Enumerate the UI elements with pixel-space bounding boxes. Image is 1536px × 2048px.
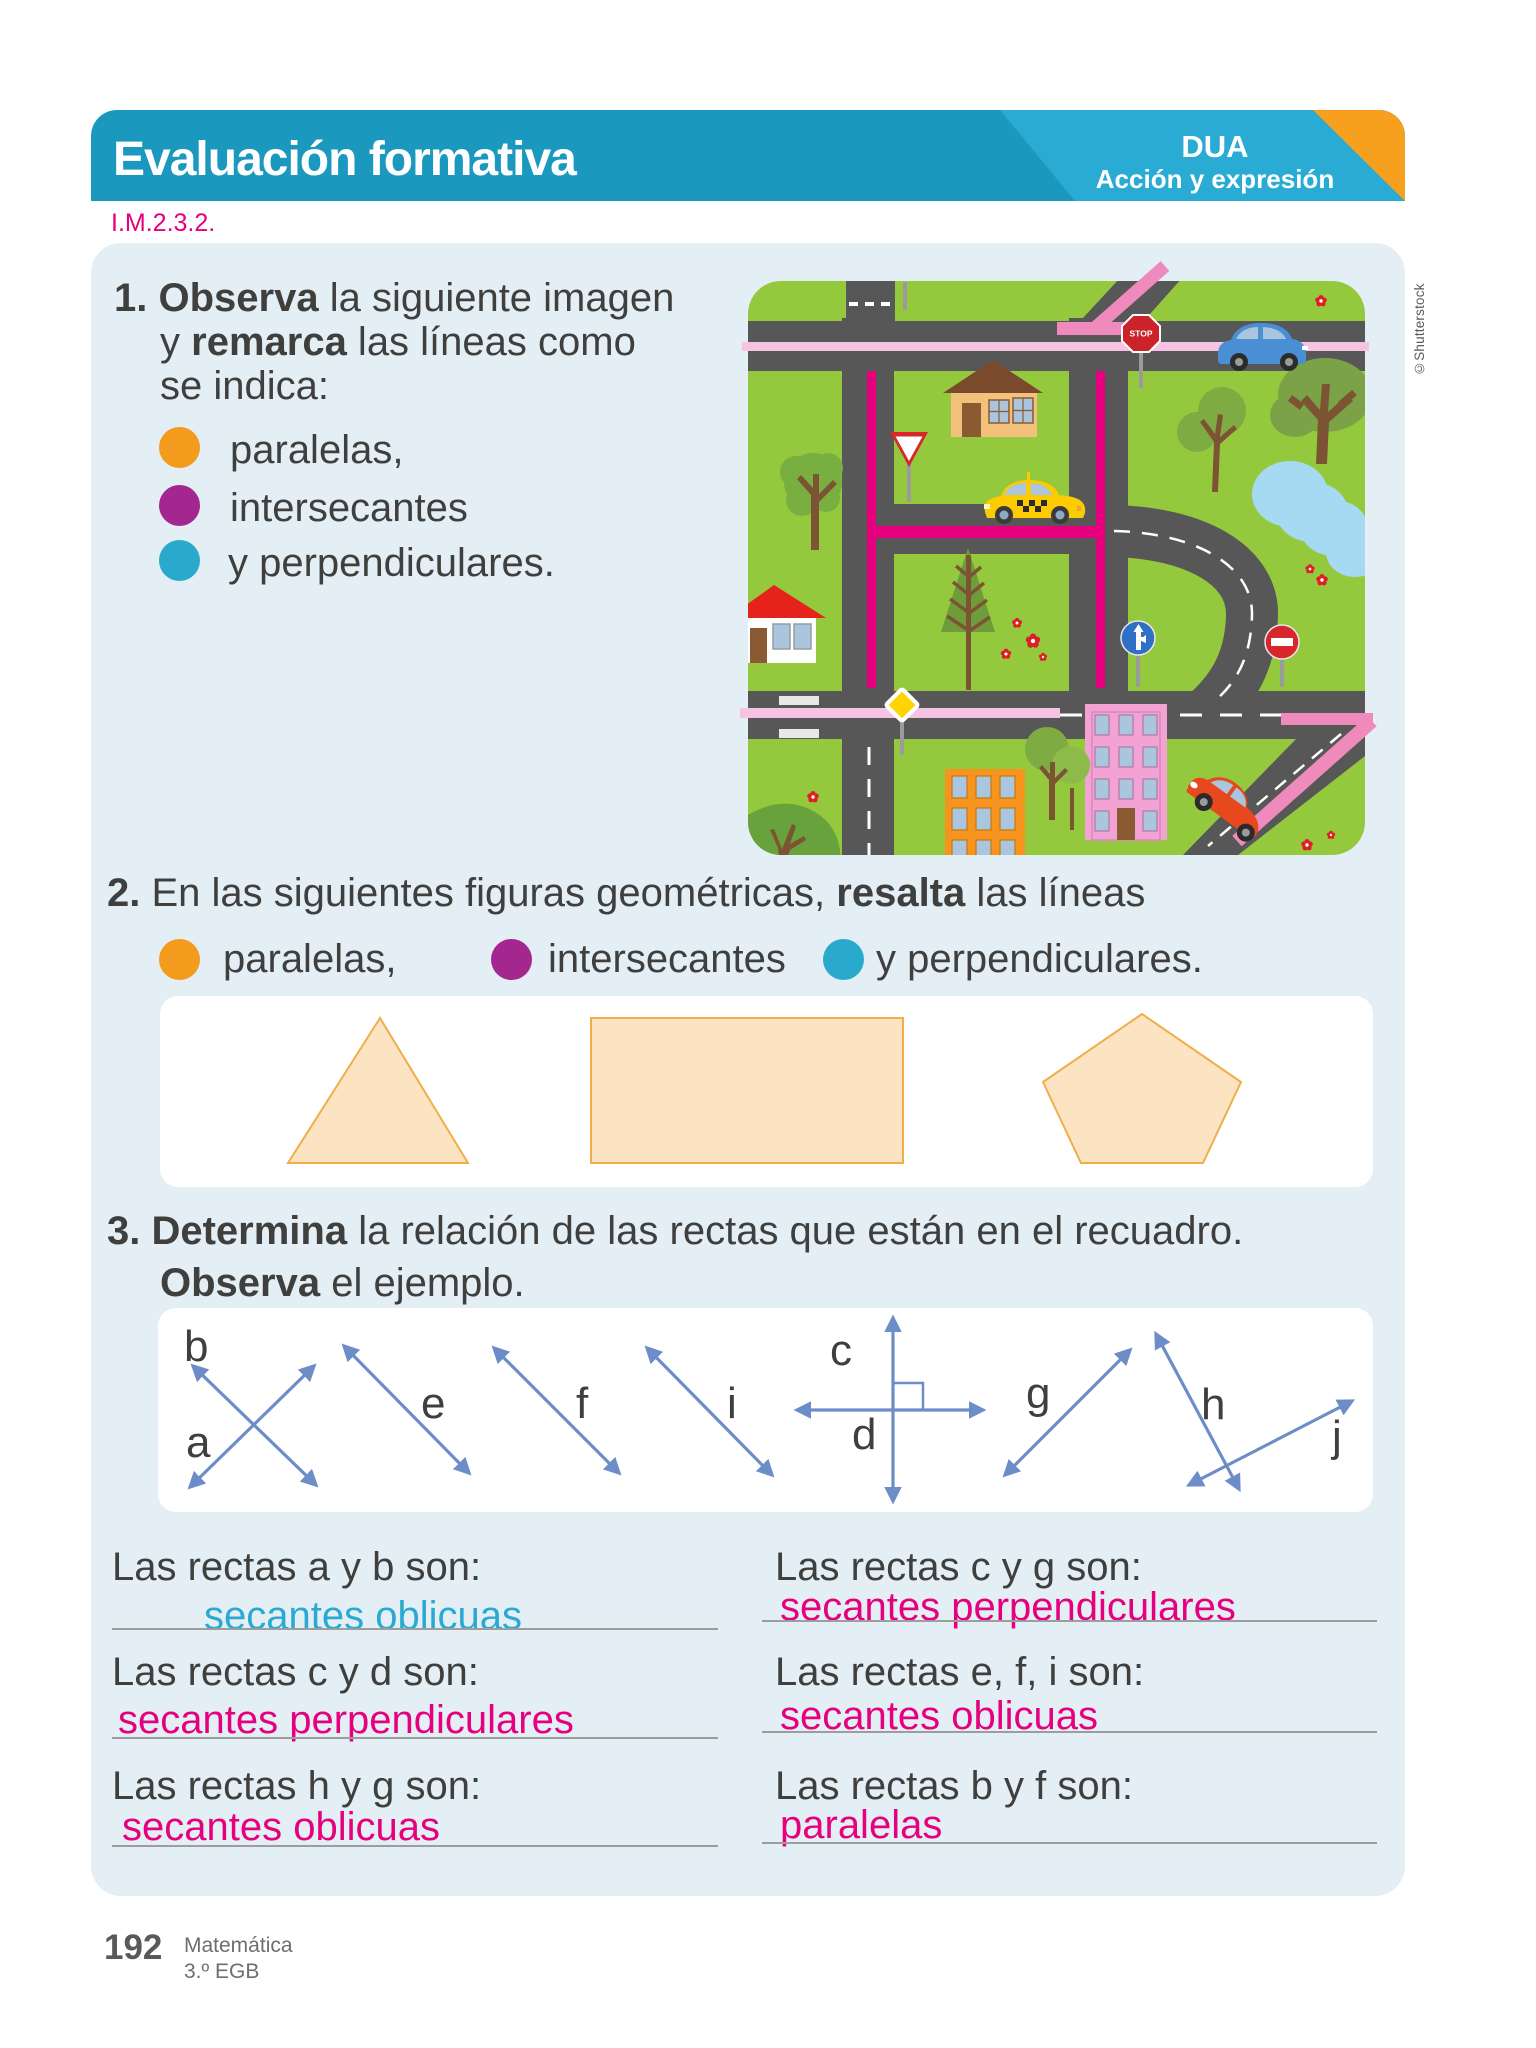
- svg-text:a: a: [186, 1418, 211, 1467]
- svg-text:h: h: [1201, 1380, 1225, 1429]
- svg-text:e: e: [421, 1379, 445, 1428]
- svg-text:f: f: [576, 1379, 589, 1428]
- svg-text:i: i: [727, 1379, 737, 1428]
- svg-text:d: d: [852, 1410, 876, 1459]
- svg-text:j: j: [1330, 1412, 1342, 1461]
- svg-text:STOP: STOP: [1130, 329, 1153, 339]
- svg-text:b: b: [184, 1322, 208, 1371]
- svg-text:c: c: [830, 1326, 852, 1375]
- svg-text:g: g: [1026, 1369, 1050, 1418]
